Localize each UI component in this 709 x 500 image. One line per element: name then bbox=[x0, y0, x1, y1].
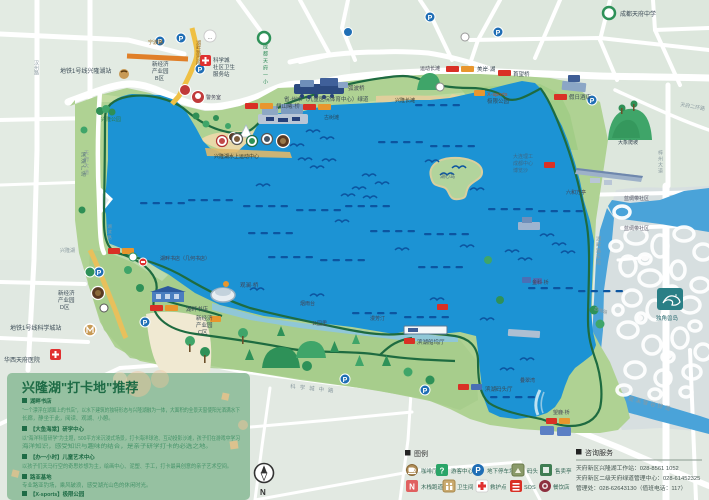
svg-text:湖畔书店: 湖畔书店 bbox=[30, 397, 52, 405]
svg-text:产业园: 产业园 bbox=[58, 296, 75, 304]
svg-text:科学城: 科学城 bbox=[213, 56, 230, 64]
svg-text:服务站: 服务站 bbox=[213, 70, 230, 78]
svg-text:码头: 码头 bbox=[527, 467, 539, 475]
svg-text:?: ? bbox=[440, 467, 445, 476]
svg-text:产业园: 产业园 bbox=[196, 321, 213, 329]
svg-text:蓝绸带社区: 蓝绸带社区 bbox=[624, 195, 649, 202]
svg-text:以孩子们天马行空的奇思妙想为主，绘画中心、泥塑、手工，打卡最: 以孩子们天马行空的奇思妙想为主，绘画中心、泥塑、手工，打卡最具创意的亲子艺术空间… bbox=[22, 462, 232, 470]
svg-text:以"海洋科普研学"为主题，500平方米沉浸式场景，打卡海洋球: 以"海洋科普研学"为主题，500平方米沉浸式场景，打卡海洋球池、互动投影沙滩，孩… bbox=[22, 434, 240, 442]
svg-text:专业路亚钓场，乘风破浪，感受湖光山色的休闲时光。: 专业路亚钓场，乘风破浪，感受湖光山色的休闲时光。 bbox=[22, 481, 151, 489]
svg-text:P: P bbox=[428, 15, 433, 22]
svg-text:汉州路: 汉州路 bbox=[33, 59, 39, 76]
svg-text:兴隆湖"打卡地"推荐: 兴隆湖"打卡地"推荐 bbox=[22, 380, 138, 395]
svg-text:救护点: 救护点 bbox=[490, 483, 507, 491]
svg-text:咨询服务: 咨询服务 bbox=[585, 448, 613, 457]
svg-text:P: P bbox=[496, 30, 501, 37]
svg-text:C区: C区 bbox=[198, 329, 208, 336]
svg-text:观澜·桥: 观澜·桥 bbox=[240, 281, 259, 289]
svg-text:地铁1号线科学城站: 地铁1号线科学城站 bbox=[10, 324, 61, 332]
svg-text:宁波路: 宁波路 bbox=[148, 39, 163, 46]
svg-text:兴隆湖: 兴隆湖 bbox=[60, 247, 75, 254]
svg-text:望鹿·桥: 望鹿·桥 bbox=[553, 409, 570, 416]
svg-text:兴隆长滩: 兴隆长滩 bbox=[395, 97, 415, 104]
svg-text:天府新区兴隆湖工作站：028-8561 1052: 天府新区兴隆湖工作站：028-8561 1052 bbox=[576, 464, 679, 472]
svg-text:【办一小时】儿童艺术中心: 【办一小时】儿童艺术中心 bbox=[30, 453, 95, 461]
svg-text:六和方亭: 六和方亭 bbox=[566, 189, 586, 196]
svg-text:社区卫生: 社区卫生 bbox=[213, 63, 236, 71]
svg-text:漫芳汀: 漫芳汀 bbox=[370, 315, 385, 322]
svg-text:弧波桥: 弧波桥 bbox=[348, 84, 365, 92]
svg-text:叠翠湾: 叠翠湾 bbox=[520, 377, 535, 384]
svg-text:天府新区二级天府绿道管理中心：028-61452325: 天府新区二级天府绿道管理中心：028-61452325 bbox=[576, 474, 700, 482]
svg-text:N: N bbox=[260, 488, 266, 497]
svg-text:湖畔路东段: 湖畔路东段 bbox=[595, 235, 601, 266]
svg-text:P: P bbox=[475, 466, 481, 475]
svg-text:成都天府一小: 成都天府一小 bbox=[262, 43, 268, 86]
svg-text:木栈跑道: 木栈跑道 bbox=[421, 483, 444, 491]
svg-text:P: P bbox=[143, 320, 148, 327]
svg-text:地铁1号线兴隆湖站: 地铁1号线兴隆湖站 bbox=[60, 67, 111, 75]
svg-text:美岸·湖: 美岸·湖 bbox=[477, 65, 496, 73]
svg-text:P: P bbox=[198, 67, 203, 74]
svg-text:湖心岛: 湖心岛 bbox=[440, 173, 455, 180]
svg-text:SOS: SOS bbox=[524, 485, 536, 491]
svg-text:蓝绸带社区: 蓝绸带社区 bbox=[624, 225, 649, 232]
svg-text:极限公园: 极限公园 bbox=[487, 97, 510, 105]
svg-text:产业园: 产业园 bbox=[152, 67, 169, 75]
svg-text:【X-sports】极限公园: 【X-sports】极限公园 bbox=[30, 490, 85, 498]
svg-text:路亚基地: 路亚基地 bbox=[30, 473, 52, 481]
svg-text:管理处：028-62643130（值班电话：117）: 管理处：028-62643130（值班电话：117） bbox=[576, 484, 686, 492]
svg-text:警务室: 警务室 bbox=[206, 94, 221, 101]
svg-text:图例: 图例 bbox=[414, 449, 428, 458]
svg-text:运动长滩: 运动长滩 bbox=[420, 65, 440, 72]
svg-text:游客中心: 游客中心 bbox=[451, 467, 474, 475]
svg-text:B区: B区 bbox=[155, 75, 165, 82]
svg-text:...: ... bbox=[208, 35, 212, 41]
svg-text:博览沙: 博览沙 bbox=[513, 167, 528, 174]
svg-text:餐饮店: 餐饮店 bbox=[553, 483, 570, 491]
svg-text:湖畔书店: 湖畔书店 bbox=[186, 305, 209, 313]
svg-text:假日酒店: 假日酒店 bbox=[569, 93, 592, 101]
svg-text:首望桥: 首望桥 bbox=[513, 70, 530, 78]
svg-text:N: N bbox=[409, 483, 415, 492]
svg-text:成都中心: 成都中心 bbox=[513, 160, 533, 167]
svg-text:D区: D区 bbox=[60, 304, 70, 311]
svg-text:成都天府中学: 成都天府中学 bbox=[620, 10, 656, 18]
svg-text:兴隆公园: 兴隆公园 bbox=[101, 116, 121, 123]
svg-text:独角兽岛: 独角兽岛 bbox=[656, 314, 679, 322]
svg-text:湖滨路: 湖滨路 bbox=[107, 223, 113, 241]
svg-text:地下停车场: 地下停车场 bbox=[487, 467, 515, 475]
svg-text:湖畔书店（几何书店）: 湖畔书店（几何书店） bbox=[160, 255, 210, 262]
svg-text:新经济: 新经济 bbox=[152, 60, 169, 68]
svg-text:P: P bbox=[343, 377, 348, 384]
svg-text:【大鱼海棠】研学中心: 【大鱼海棠】研学中心 bbox=[30, 425, 85, 433]
svg-text:烟雨台: 烟雨台 bbox=[300, 300, 315, 307]
svg-text:金科·桥: 金科·桥 bbox=[532, 279, 549, 286]
svg-text:P: P bbox=[423, 388, 428, 395]
svg-text:大象爬坡: 大象爬坡 bbox=[618, 139, 638, 146]
svg-text:P: P bbox=[97, 270, 102, 277]
svg-text:海洋知识，感受知识与趣味的结合，是亲子研学打卡的必选之地。: 海洋知识，感受知识与趣味的结合，是亲子研学打卡的必选之地。 bbox=[22, 442, 212, 450]
svg-text:兴隆湖水上运动中心: 兴隆湖水上运动中心 bbox=[214, 153, 259, 160]
svg-text:卫生间: 卫生间 bbox=[457, 483, 474, 491]
svg-text:咖啡厅: 咖啡厅 bbox=[421, 467, 438, 475]
svg-text:梓州大道: 梓州大道 bbox=[657, 149, 663, 174]
svg-text:长廊，静坐于此，阅读、观湖、小憩。: 长廊，静坐于此，阅读、观湖、小憩。 bbox=[22, 414, 114, 422]
svg-text:古树滩: 古树滩 bbox=[324, 114, 339, 121]
svg-text:公园里: 公园里 bbox=[312, 321, 327, 327]
svg-text:"一个漂浮在湖面上的书店"，以水下建筑的独特形态与兴隆湖融为: "一个漂浮在湖面上的书店"，以水下建筑的独特形态与兴隆湖融为一体，大面积的全景天… bbox=[22, 406, 241, 414]
svg-text:滨湖码头厅: 滨湖码头厅 bbox=[485, 385, 513, 393]
svg-text:售卖亭: 售卖亭 bbox=[555, 467, 572, 475]
svg-text:省·州市（儿童医院体育中心）绿道: 省·州市（儿童医院体育中心）绿道 bbox=[284, 95, 369, 103]
svg-text:大连理工: 大连理工 bbox=[513, 153, 533, 160]
svg-text:新经济: 新经济 bbox=[196, 314, 213, 322]
svg-text:X-sports: X-sports bbox=[487, 92, 508, 98]
svg-text:P: P bbox=[179, 36, 184, 43]
svg-text:新经济: 新经济 bbox=[58, 289, 75, 297]
svg-text:湖畔路西段: 湖畔路西段 bbox=[195, 39, 201, 66]
svg-text:滨湖广场: 滨湖广场 bbox=[80, 151, 86, 178]
svg-text:翘山曦·桥: 翘山曦·桥 bbox=[276, 102, 300, 110]
svg-text:华西天府医院: 华西天府医院 bbox=[4, 356, 40, 364]
svg-text:滨湖船坞厅: 滨湖船坞厅 bbox=[417, 338, 445, 346]
